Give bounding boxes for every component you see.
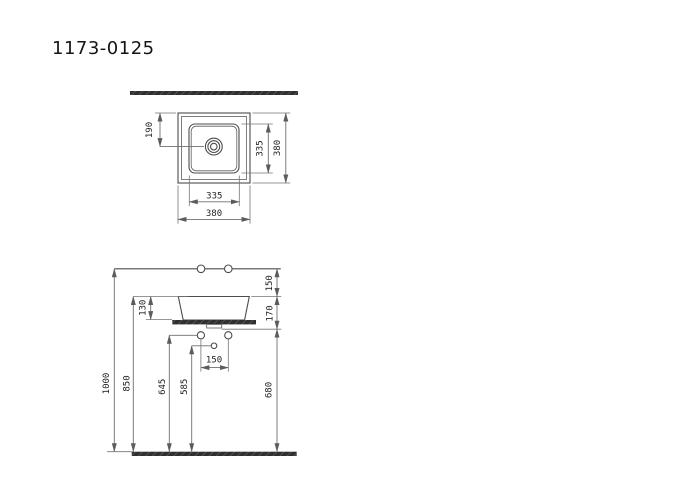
basin-profile bbox=[178, 297, 249, 321]
dim-label-drain-offset: 190 bbox=[145, 122, 155, 138]
dim-label-outer-depth: 380 bbox=[273, 140, 283, 156]
faucet-hole bbox=[225, 265, 233, 273]
dim-label-inner-depth: 335 bbox=[256, 140, 266, 156]
dim-label-overall-height: 1000 bbox=[102, 373, 112, 395]
top-view: 190 335 380 335 380 bbox=[130, 91, 298, 224]
dim-label-counter-bottom-height: 680 bbox=[265, 382, 275, 398]
dim-label-rim-height: 850 bbox=[122, 375, 132, 391]
model-number-title: 1173-0125 bbox=[52, 38, 155, 59]
dim-basin-depth: 130 bbox=[139, 297, 173, 320]
floor-section-bar bbox=[132, 452, 297, 456]
dim-overall-height: 1000 bbox=[102, 269, 114, 452]
countertop-section-bar bbox=[172, 320, 256, 324]
dim-label-rim-to-counter-bottom: 170 bbox=[265, 305, 275, 321]
dim-label-basin-depth: 130 bbox=[139, 300, 149, 316]
drawing-page: 1173-0125 190 335 380 bbox=[0, 0, 700, 495]
dim-counter-bottom-height: 680 bbox=[265, 329, 277, 452]
technical-drawing-canvas: 1173-0125 190 335 380 bbox=[0, 0, 700, 495]
dim-label-outer-width: 380 bbox=[206, 209, 222, 219]
drain-hole bbox=[211, 143, 218, 150]
dim-faucet-above-rim: 150 bbox=[265, 269, 277, 297]
dim-label-inner-width: 335 bbox=[206, 192, 222, 202]
wall-section-bar bbox=[130, 91, 298, 95]
drain-tailpiece bbox=[207, 324, 222, 328]
front-view: 150 170 680 1000 850 130 bbox=[102, 265, 297, 456]
dim-label-faucet-above-rim: 150 bbox=[265, 275, 275, 291]
supply-hole bbox=[225, 332, 232, 339]
dim-rim-to-counter-bottom: 170 bbox=[265, 297, 277, 330]
dim-label-supply-height: 645 bbox=[158, 379, 168, 395]
supply-hole bbox=[197, 332, 204, 339]
waste-hole bbox=[211, 343, 217, 349]
faucet-hole bbox=[197, 265, 205, 273]
dim-label-drain-height: 585 bbox=[180, 379, 190, 395]
dim-label-supply-spacing: 150 bbox=[206, 355, 222, 365]
